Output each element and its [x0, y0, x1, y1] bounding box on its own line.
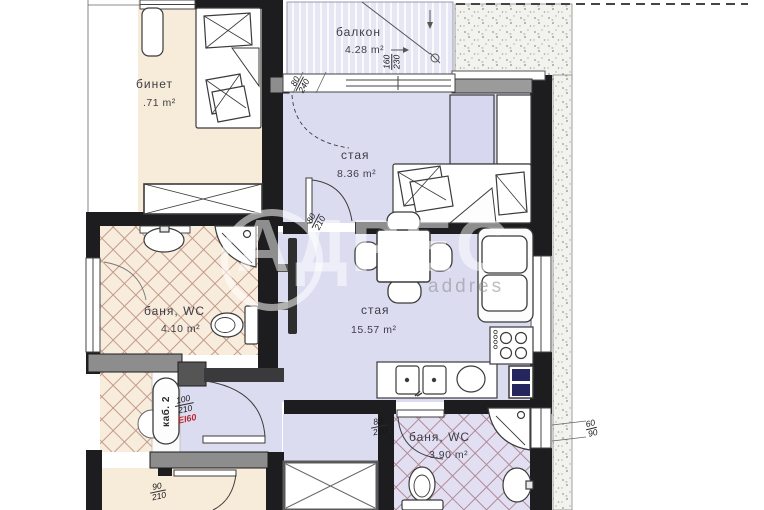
office-name: бинет — [136, 77, 173, 91]
tv-bracket — [278, 264, 288, 272]
balcony-name: балкон — [336, 25, 381, 39]
balcony-area: 4.28 m² — [345, 44, 384, 56]
bottom-room-door-leaf — [174, 470, 236, 476]
tv — [288, 238, 297, 334]
bath2-name: баня, WC — [409, 430, 470, 444]
living-area: 15.57 m² — [351, 324, 396, 336]
bedroom-wardrobe-b — [497, 95, 531, 164]
living-name: стая — [361, 303, 390, 317]
bath1-name: баня, WC — [144, 304, 205, 318]
chair-left — [355, 242, 379, 270]
bedroom-name: стая — [341, 148, 370, 162]
shower-head — [244, 231, 251, 238]
pillow — [410, 176, 453, 212]
chair-top — [387, 212, 420, 232]
bedroom-area: 8.36 m² — [337, 168, 376, 180]
round-sink — [457, 366, 485, 392]
sofa-cushion — [482, 236, 527, 273]
bottom-wardrobe — [284, 462, 377, 510]
floor-plan: АДРЕС addres бинет .71 m² балкон 4.28 m²… — [0, 0, 764, 510]
entry-door-leaf — [203, 436, 265, 443]
bath1-area: 4.10 m² — [161, 323, 200, 335]
dim-balcony-window: 160230 — [382, 54, 402, 70]
bath2-area: 3.90 m² — [429, 449, 468, 461]
toilet-tank — [402, 500, 443, 510]
pillow — [212, 86, 250, 122]
sofa-cushion — [482, 275, 527, 311]
bedroom-wardrobe-a — [450, 95, 494, 164]
chair-bottom — [388, 280, 421, 303]
bath2-door-leaf — [397, 410, 444, 417]
toilet-bowl — [211, 313, 243, 337]
dining-table — [377, 230, 430, 282]
elevator-label: каб. 2 — [153, 378, 179, 444]
nightstand — [142, 8, 163, 56]
chair-right — [428, 243, 452, 271]
tv-bracket — [278, 302, 288, 310]
office-area: .71 m² — [143, 97, 176, 109]
toilet-tank — [245, 306, 258, 344]
toilet-bowl — [409, 467, 435, 501]
shower-head — [518, 412, 525, 419]
